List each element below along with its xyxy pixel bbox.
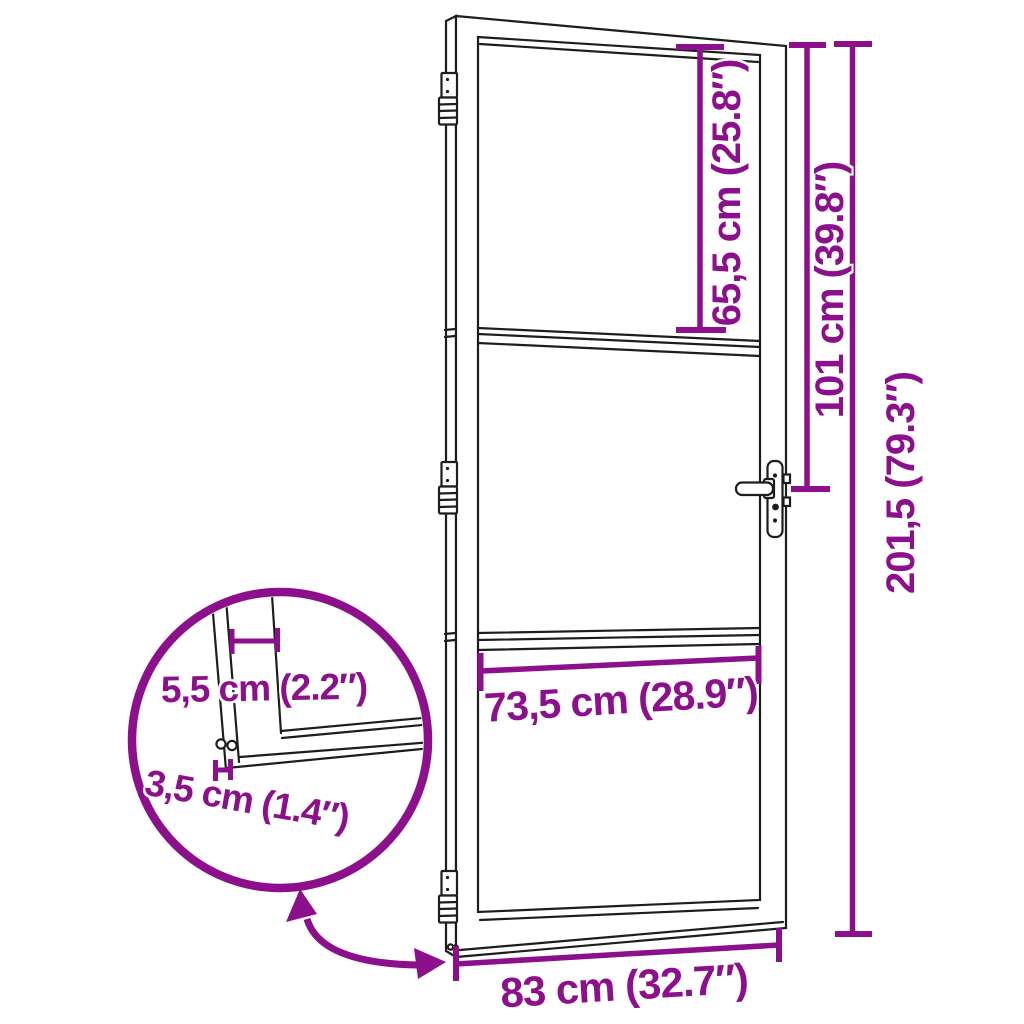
detail-zoom-arrow <box>286 889 446 979</box>
arrowhead-to-door <box>414 948 446 979</box>
hinge-bottom <box>439 871 457 923</box>
dim-label-handle-height: 101 cm (39.8″) <box>810 162 850 418</box>
dimension-diagram: 65,5 cm (25.8″) 101 cm (39.8″) 201,5 (79… <box>0 0 1024 1024</box>
detail-screw-left <box>216 739 225 748</box>
handle-lever <box>736 483 773 496</box>
hinge-middle <box>439 462 457 514</box>
detail-screw-right <box>227 741 236 750</box>
detail-circle <box>132 592 433 888</box>
dim-label-profile-width: 5,5 cm (2.2″) <box>161 668 368 709</box>
arrowhead-to-circle <box>286 889 317 922</box>
handle-screw-top <box>773 473 777 477</box>
latch-bolt <box>784 475 791 484</box>
dead-bolt <box>784 498 791 507</box>
dim-label-top-glass-height: 65,5 cm (25.8″) <box>707 60 747 327</box>
keyhole <box>772 504 779 511</box>
dim-label-total-height: 201,5 (79.3″) <box>881 372 921 594</box>
handle-screw-bottom <box>773 518 777 522</box>
diagram-drawing <box>0 0 1024 1024</box>
hinge-top <box>439 73 457 125</box>
